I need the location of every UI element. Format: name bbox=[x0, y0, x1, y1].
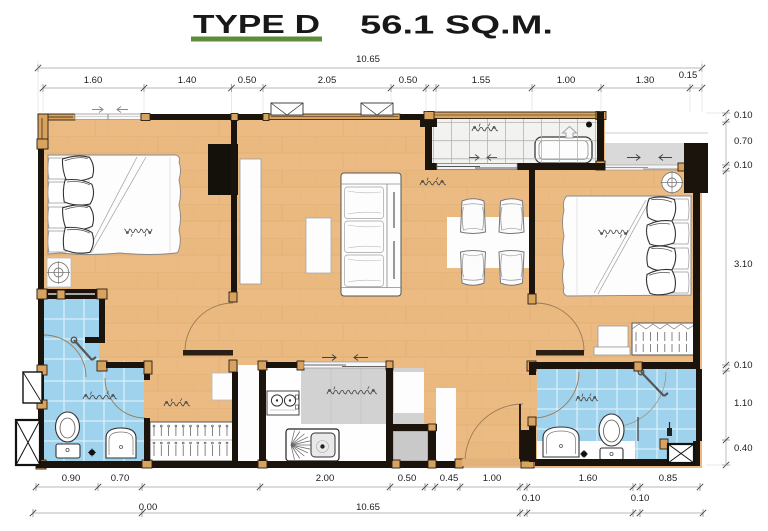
svg-text:0.10: 0.10 bbox=[734, 160, 753, 171]
svg-text:1.00: 1.00 bbox=[483, 473, 502, 484]
svg-text:10.65: 10.65 bbox=[356, 502, 380, 513]
svg-text:0.50: 0.50 bbox=[399, 75, 418, 86]
svg-text:0.10: 0.10 bbox=[522, 493, 541, 504]
svg-text:0.15: 0.15 bbox=[679, 70, 698, 81]
svg-text:0.50: 0.50 bbox=[398, 473, 417, 484]
svg-text:1.40: 1.40 bbox=[178, 75, 197, 86]
svg-text:1.60: 1.60 bbox=[84, 75, 103, 86]
svg-text:56.1 SQ.M.: 56.1 SQ.M. bbox=[360, 10, 553, 40]
svg-text:0.10: 0.10 bbox=[631, 493, 650, 504]
svg-text:0.70: 0.70 bbox=[111, 473, 130, 484]
svg-text:2.05: 2.05 bbox=[318, 75, 337, 86]
svg-text:0.40: 0.40 bbox=[734, 443, 753, 454]
svg-text:0.10: 0.10 bbox=[734, 360, 753, 371]
svg-text:0.50: 0.50 bbox=[238, 75, 257, 86]
svg-text:1.55: 1.55 bbox=[472, 75, 491, 86]
svg-text:0.45: 0.45 bbox=[440, 473, 459, 484]
svg-text:0.10: 0.10 bbox=[734, 110, 753, 121]
svg-text:1.30: 1.30 bbox=[636, 75, 655, 86]
svg-text:0.90: 0.90 bbox=[62, 473, 81, 484]
svg-text:1.60: 1.60 bbox=[579, 473, 598, 484]
svg-text:3.10: 3.10 bbox=[734, 259, 753, 270]
svg-text:10.65: 10.65 bbox=[356, 54, 380, 65]
svg-text:0.70: 0.70 bbox=[734, 136, 753, 147]
svg-text:1.10: 1.10 bbox=[734, 398, 753, 409]
svg-text:2.00: 2.00 bbox=[316, 473, 335, 484]
svg-text:0.00: 0.00 bbox=[139, 502, 158, 513]
svg-text:1.00: 1.00 bbox=[557, 75, 576, 86]
svg-text:0.85: 0.85 bbox=[659, 473, 678, 484]
svg-text:TYPE D: TYPE D bbox=[193, 9, 320, 39]
